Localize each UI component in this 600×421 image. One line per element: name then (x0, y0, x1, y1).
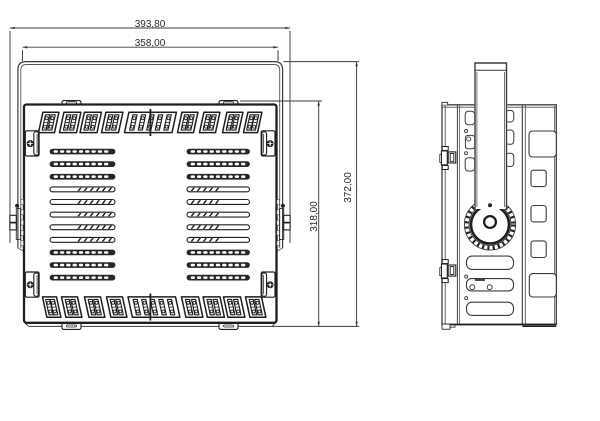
svg-text:393,80: 393,80 (135, 19, 166, 30)
svg-text:318,00: 318,00 (309, 201, 320, 232)
svg-text:372,00: 372,00 (343, 172, 354, 203)
svg-text:358,00: 358,00 (135, 38, 166, 49)
